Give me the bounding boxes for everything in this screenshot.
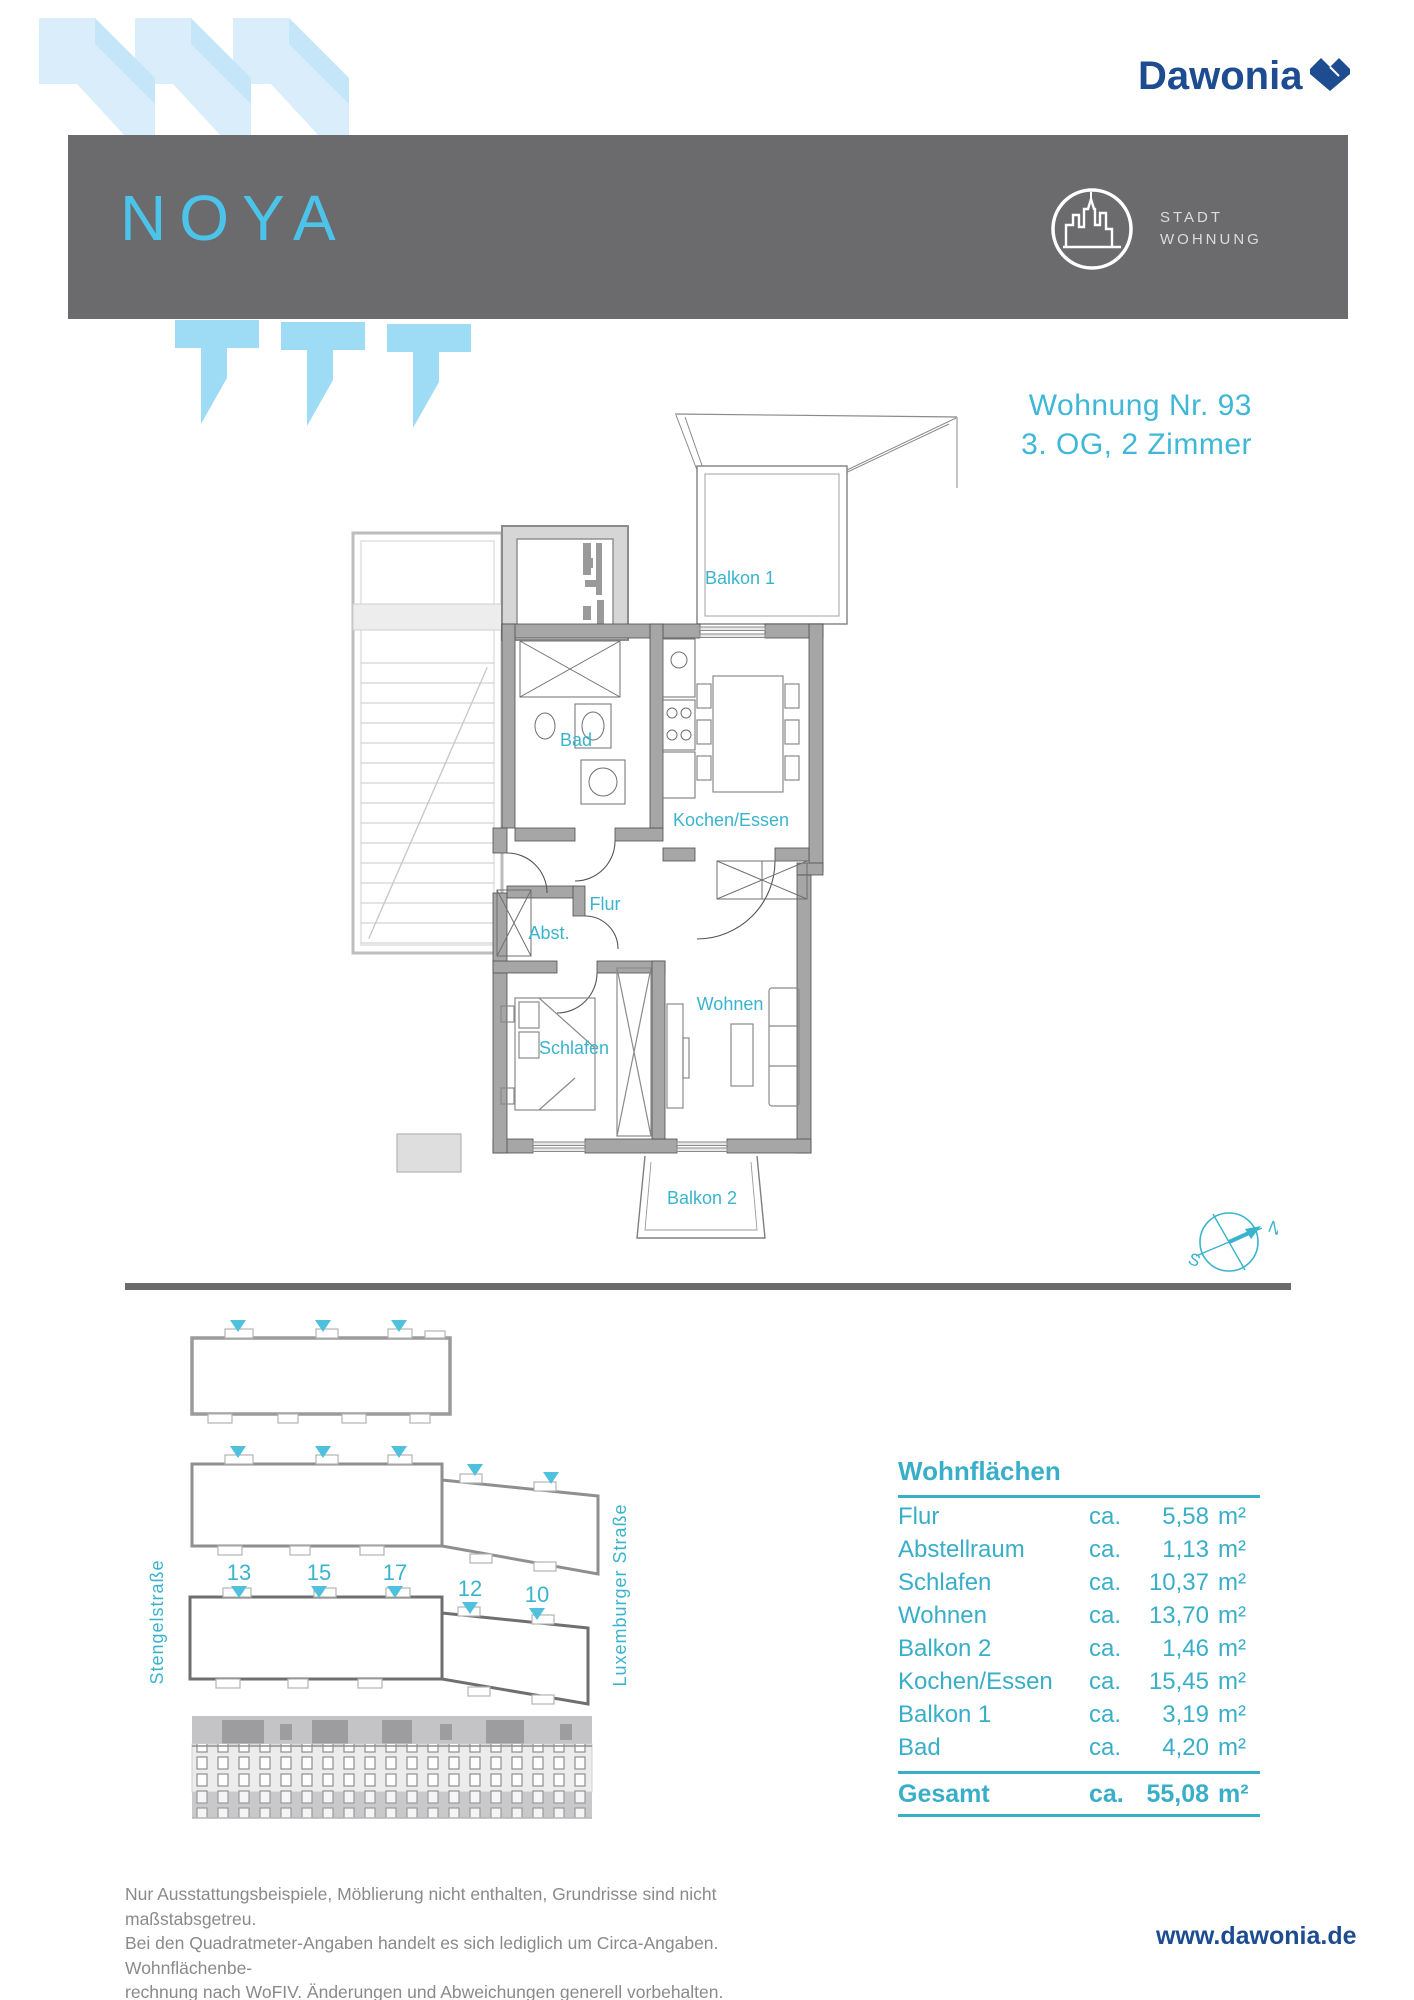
area-unit: m²	[1209, 1701, 1260, 1729]
street-label-right: Luxemburger Straße	[610, 1503, 630, 1686]
total-label: Gesamt	[898, 1780, 1089, 1809]
area-value: 1,13	[1133, 1536, 1209, 1564]
area-unit: m²	[1209, 1536, 1260, 1564]
building-elevation	[192, 1716, 592, 1818]
street-label-left: Stengelstraße	[147, 1559, 167, 1684]
area-label: Abstellraum	[898, 1536, 1089, 1564]
house-number-13: 13	[227, 1560, 251, 1585]
area-ca: ca.	[1089, 1602, 1133, 1630]
area-label: Bad	[898, 1734, 1089, 1762]
area-label: Wohnen	[898, 1602, 1089, 1630]
area-value: 3,19	[1133, 1701, 1209, 1729]
label-wohnen: Wohnen	[697, 994, 764, 1014]
balkon1-area: Balkon 1	[675, 414, 957, 624]
badge-line1: STADT	[1160, 207, 1262, 229]
label-bad: Bad	[560, 730, 592, 750]
area-label: Balkon 2	[898, 1635, 1089, 1663]
stairwell	[353, 533, 502, 1172]
compass-north-label: N	[1266, 1217, 1278, 1239]
house-number-15: 15	[307, 1560, 331, 1585]
area-unit: m²	[1209, 1635, 1260, 1663]
badge-text: STADT WOHNUNG	[1160, 207, 1262, 251]
label-balkon2: Balkon 2	[667, 1188, 737, 1208]
walls	[493, 624, 823, 1153]
area-value: 1,46	[1133, 1635, 1209, 1663]
areas-total-row: Gesamt ca. 55,08 m²	[898, 1771, 1260, 1817]
project-name: NOYA	[120, 181, 349, 255]
area-value: 5,58	[1133, 1503, 1209, 1531]
bathroom-fixtures	[520, 641, 625, 804]
city-skyline-icon	[1048, 185, 1136, 273]
badge-line2: WOHNUNG	[1160, 229, 1262, 251]
area-value: 4,20	[1133, 1734, 1209, 1762]
disclaimer-line1: Nur Ausstattungsbeispiele, Möblierung ni…	[125, 1882, 775, 1931]
area-label: Kochen/Essen	[898, 1668, 1089, 1696]
compass-icon: N S	[1183, 1193, 1278, 1288]
label-abst: Abst.	[528, 923, 569, 943]
area-unit: m²	[1209, 1569, 1260, 1597]
heart-icon	[1310, 58, 1350, 92]
table-row: Kochen/Essen ca. 15,45 m²	[898, 1668, 1260, 1701]
house-number-17: 17	[383, 1560, 407, 1585]
disclaimer-text: Nur Ausstattungsbeispiele, Möblierung ni…	[125, 1882, 775, 2000]
page: NOYA STADT WOHNUNG Dawonia Wohnung Nr. 9…	[0, 0, 1414, 2000]
areas-title: Wohnflächen	[898, 1456, 1260, 1498]
table-row: Bad ca. 4,20 m²	[898, 1734, 1260, 1767]
balkon2-area: Balkon 2	[637, 1156, 765, 1238]
label-balkon1: Balkon 1	[705, 568, 775, 588]
area-unit: m²	[1209, 1734, 1260, 1762]
label-schlafen: Schlafen	[539, 1038, 609, 1058]
disclaimer-line2: Bei den Quadratmeter-Angaben handelt es …	[125, 1931, 775, 1980]
area-ca: ca.	[1089, 1503, 1133, 1531]
table-row: Abstellraum ca. 1,13 m²	[898, 1536, 1260, 1569]
area-ca: ca.	[1089, 1668, 1133, 1696]
area-unit: m²	[1209, 1602, 1260, 1630]
section-divider	[125, 1283, 1291, 1290]
area-value: 10,37	[1133, 1569, 1209, 1597]
house-number-12: 12	[458, 1576, 482, 1601]
total-value: 55,08	[1133, 1780, 1209, 1809]
areas-table: Wohnflächen Flur ca. 5,58 m² Abstellraum…	[898, 1456, 1260, 1817]
floorplan: Balkon 1	[345, 408, 965, 1270]
siteplan-building-3: 13 15 17 12 10	[190, 1560, 588, 1704]
dining-set	[697, 676, 799, 792]
table-row: Balkon 2 ca. 1,46 m²	[898, 1635, 1260, 1668]
siteplan-building-1	[192, 1320, 450, 1423]
dawonia-logo: Dawonia	[1138, 54, 1350, 99]
area-label: Balkon 1	[898, 1701, 1089, 1729]
area-ca: ca.	[1089, 1734, 1133, 1762]
deco-arrows-top	[37, 18, 367, 136]
siteplan-building-2	[192, 1446, 598, 1574]
apartment-floor-rooms: 3. OG, 2 Zimmer	[990, 425, 1252, 464]
stadt-wohnung-badge: STADT WOHNUNG	[1048, 184, 1348, 274]
website-link[interactable]: www.dawonia.de	[1156, 1922, 1357, 1951]
area-unit: m²	[1209, 1668, 1260, 1696]
area-value: 15,45	[1133, 1668, 1209, 1696]
label-flur: Flur	[590, 894, 621, 914]
area-label: Schlafen	[898, 1569, 1089, 1597]
apartment-number: Wohnung Nr. 93	[990, 386, 1252, 425]
table-row: Schlafen ca. 10,37 m²	[898, 1569, 1260, 1602]
table-row: Balkon 1 ca. 3,19 m²	[898, 1701, 1260, 1734]
dawonia-logo-text: Dawonia	[1138, 54, 1302, 99]
elevator-shaft	[502, 526, 628, 640]
area-label: Flur	[898, 1503, 1089, 1531]
house-number-10: 10	[525, 1582, 549, 1607]
total-unit: m²	[1209, 1780, 1260, 1809]
disclaimer-line3: rechnung nach WoFIV. Änderungen und Abwe…	[125, 1980, 775, 2000]
area-ca: ca.	[1089, 1635, 1133, 1663]
area-unit: m²	[1209, 1503, 1260, 1531]
apartment-title: Wohnung Nr. 93 3. OG, 2 Zimmer	[990, 386, 1252, 464]
table-row: Wohnen ca. 13,70 m²	[898, 1602, 1260, 1635]
label-kochen-essen: Kochen/Essen	[673, 810, 789, 830]
total-ca: ca.	[1089, 1780, 1133, 1809]
siteplan: Stengelstraße Luxemburger Straße	[130, 1312, 665, 1824]
table-row: Flur ca. 5,58 m²	[898, 1503, 1260, 1536]
area-ca: ca.	[1089, 1536, 1133, 1564]
area-ca: ca.	[1089, 1569, 1133, 1597]
area-value: 13,70	[1133, 1602, 1209, 1630]
area-ca: ca.	[1089, 1701, 1133, 1729]
compass-south-label: S	[1186, 1249, 1204, 1271]
